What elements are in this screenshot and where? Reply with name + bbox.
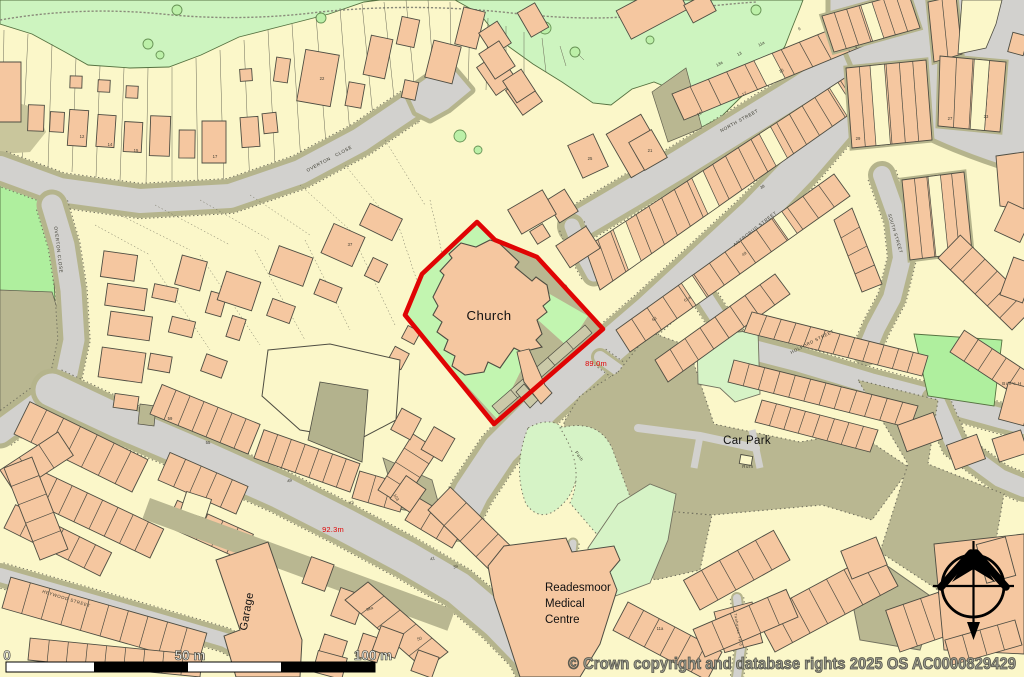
svg-text:Church: Church	[467, 308, 512, 323]
svg-text:23: 23	[984, 114, 989, 119]
svg-text:21: 21	[648, 148, 653, 153]
svg-text:Medical: Medical	[545, 598, 585, 610]
svg-text:11a: 11a	[657, 626, 664, 631]
svg-text:29: 29	[856, 136, 861, 141]
svg-text:Centre: Centre	[545, 614, 580, 626]
svg-text:27: 27	[948, 116, 953, 121]
svg-text:22: 22	[320, 76, 325, 81]
svg-text:92.3m: 92.3m	[322, 525, 344, 534]
svg-text:0: 0	[3, 648, 11, 663]
svg-text:37: 37	[348, 242, 353, 247]
svg-text:25: 25	[588, 156, 593, 161]
svg-text:17: 17	[213, 154, 218, 159]
svg-text:14: 14	[108, 142, 113, 147]
svg-text:100 m: 100 m	[354, 648, 392, 663]
svg-text:Bull's H: Bull's H	[1002, 381, 1022, 386]
svg-text:Ruin: Ruin	[742, 464, 753, 469]
svg-text:59: 59	[168, 416, 173, 421]
svg-text:50 m: 50 m	[175, 648, 206, 663]
svg-text:89.0m: 89.0m	[585, 359, 607, 368]
svg-text:© Crown copyright and database: © Crown copyright and database rights 20…	[568, 655, 1016, 673]
svg-text:15: 15	[134, 148, 139, 153]
svg-text:12: 12	[80, 134, 85, 139]
svg-text:Readesmoor: Readesmoor	[545, 582, 611, 594]
svg-text:55: 55	[206, 440, 211, 445]
svg-text:Car Park: Car Park	[723, 435, 771, 447]
